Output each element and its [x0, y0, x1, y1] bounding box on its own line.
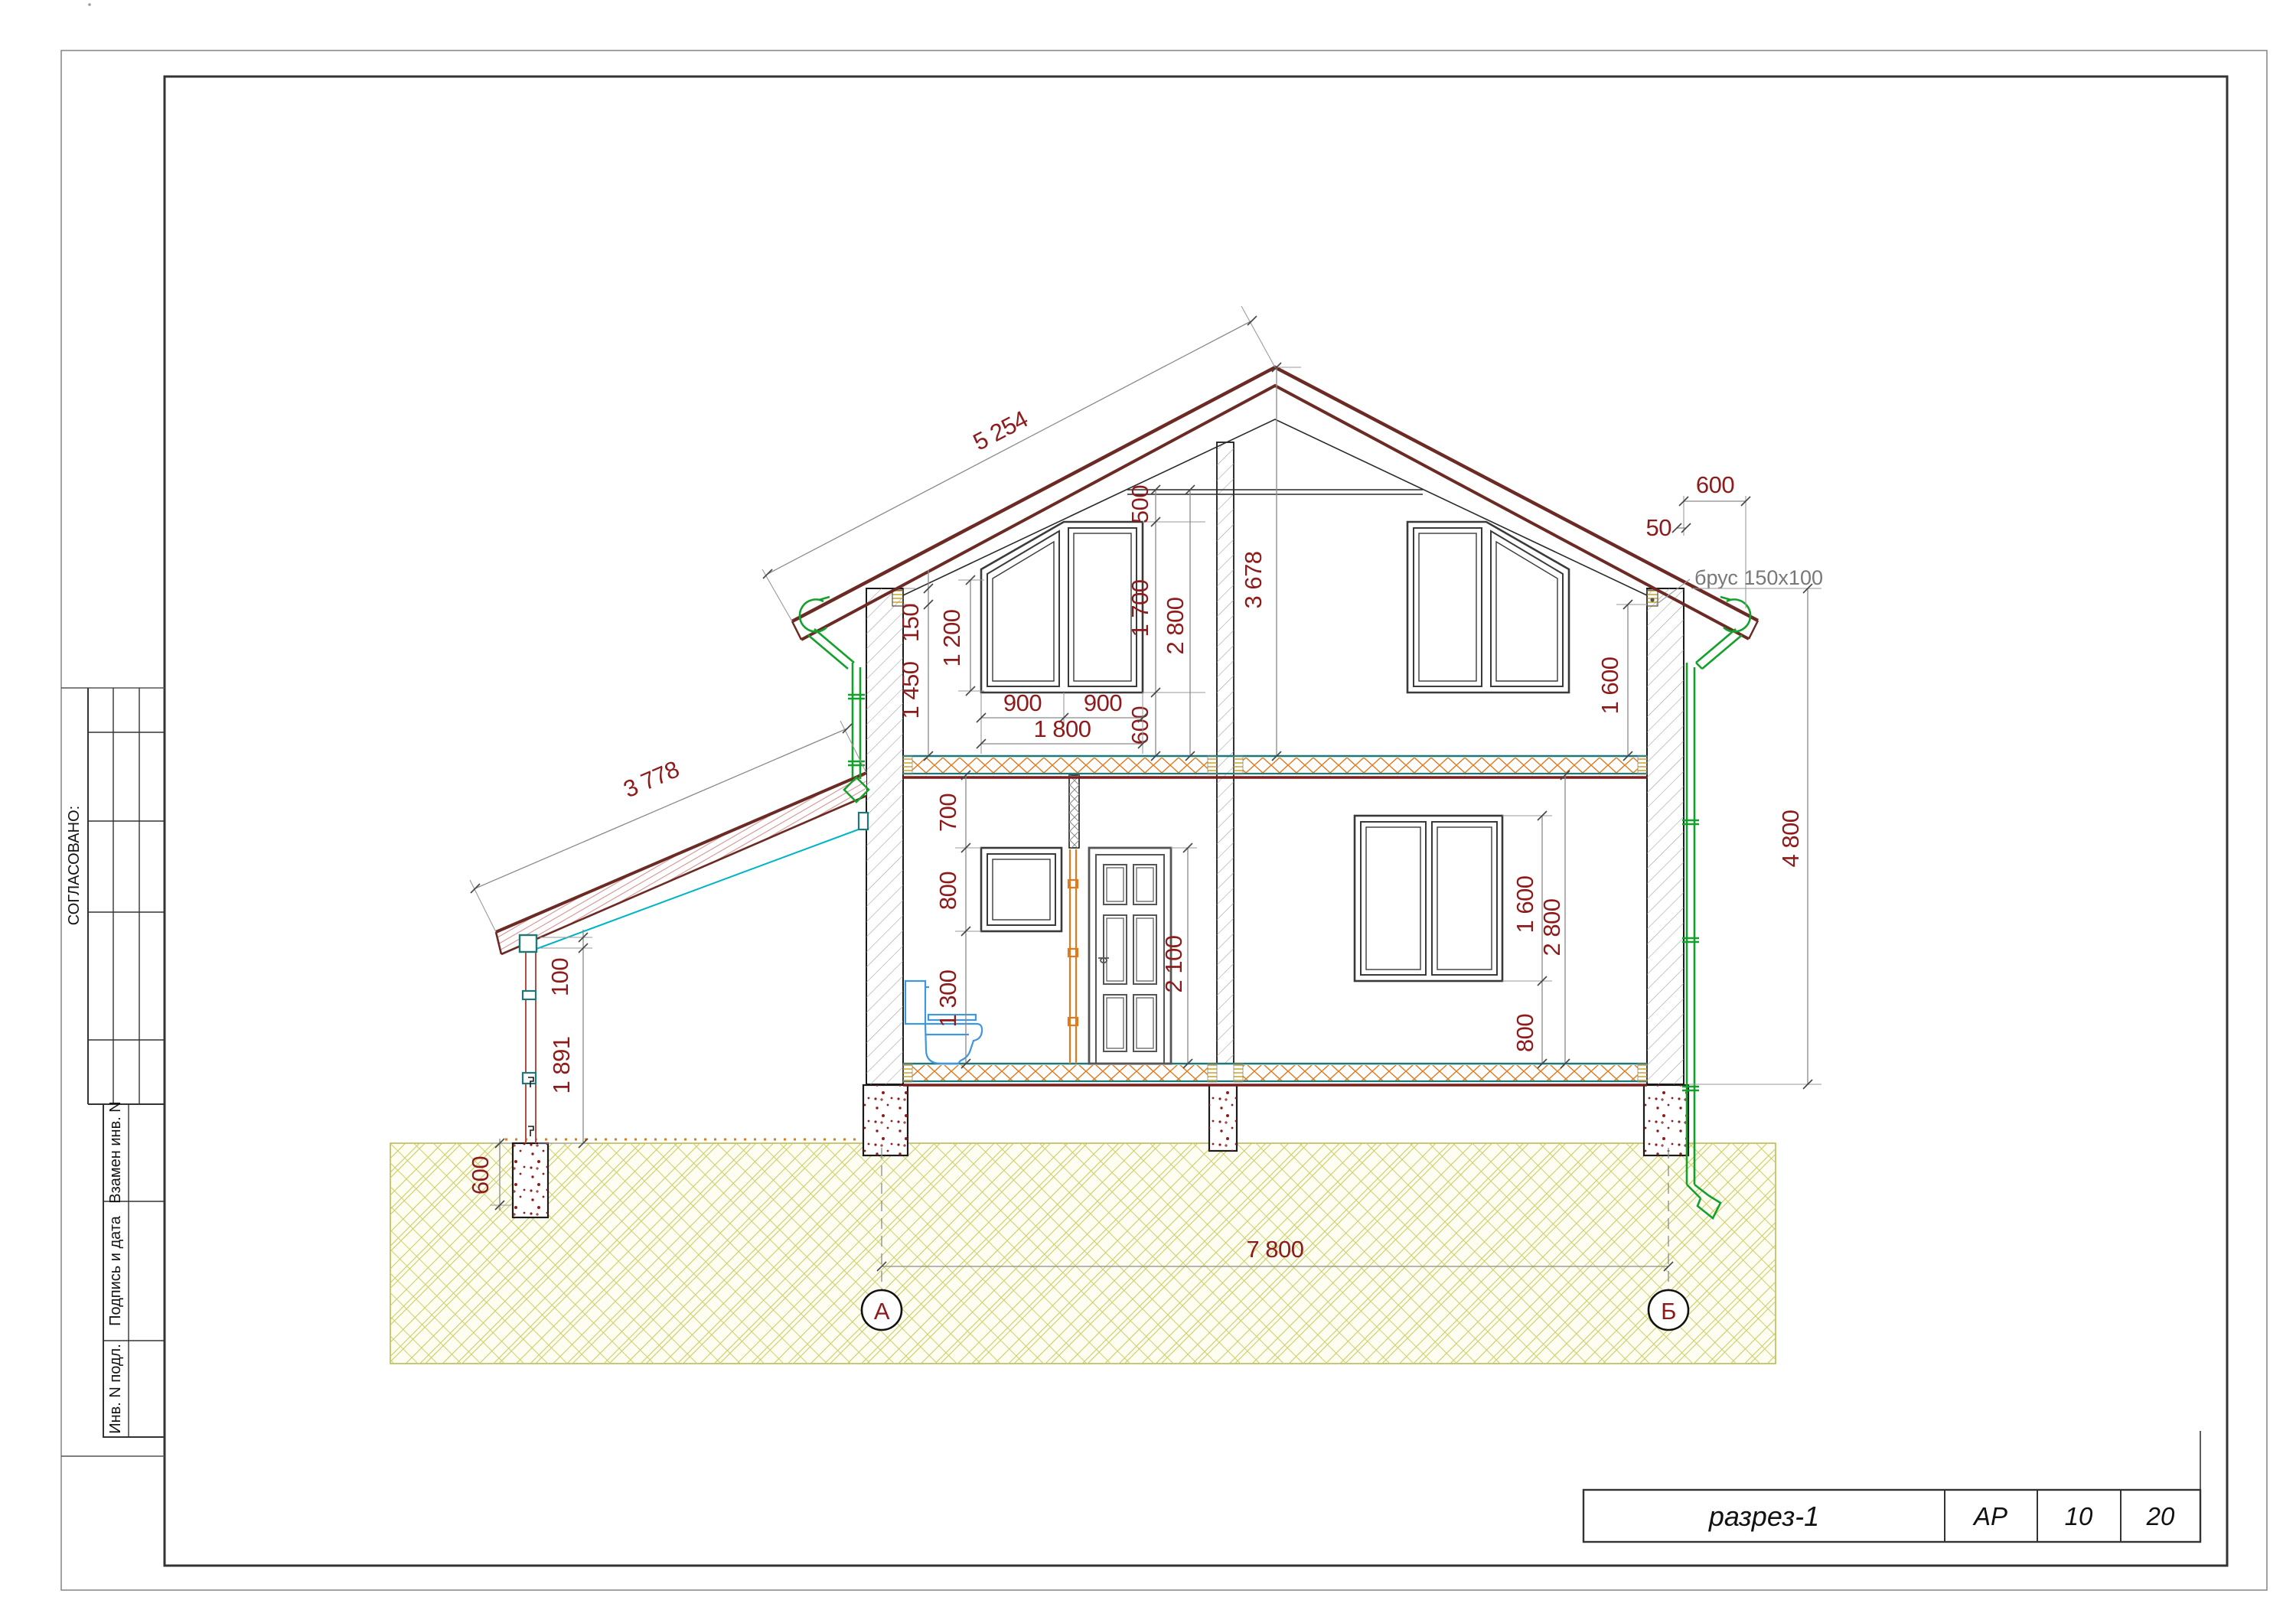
dim-text-right-total: 4 800 — [1777, 810, 1804, 867]
wall-beam-right — [1647, 590, 1658, 606]
dim-text-attic-win-w1: 900 — [1003, 689, 1042, 716]
section-drawing-canvas: СОГЛАСОВАНО: Взамен инв. N Подпись и дат… — [0, 0, 2296, 1623]
dim-ridge-height: 3 678 — [1240, 363, 1301, 761]
stage-code: АР — [1972, 1502, 2007, 1530]
dim-text-attic-pane-height: 1 200 — [938, 609, 965, 666]
post-connector-mid — [523, 991, 536, 999]
stamp-row-inv: Инв. N подл. — [107, 1344, 124, 1434]
post-connector-top — [520, 935, 536, 952]
pier-left — [863, 1085, 908, 1155]
pier-right — [1644, 1085, 1688, 1155]
dim-attic-wall-height: 1 600 — [1596, 600, 1647, 761]
partition-above-door — [1069, 775, 1079, 848]
door-jamb-section — [1068, 849, 1078, 1064]
bathroom-window — [981, 848, 1062, 931]
roof-inner-line — [801, 386, 1749, 640]
dim-roof-slope: 5 254 — [762, 306, 1275, 621]
dim-attic-window-widths: 900 900 1 800 — [977, 689, 1147, 754]
floor1-slab — [903, 1064, 1647, 1085]
dim-text-axes-span: 7 800 — [1246, 1236, 1303, 1263]
wall-center-interior — [1217, 442, 1234, 1064]
ground — [390, 1139, 1776, 1364]
wall-right-exterior — [1647, 588, 1684, 1084]
attic-ceiling-line — [903, 419, 1647, 595]
title-block: разрез-1 АР 10 20 — [1583, 1431, 2200, 1542]
pier-center — [1209, 1085, 1237, 1151]
porch-post — [520, 935, 536, 1143]
floor2-slab — [903, 756, 1647, 777]
dim-floor1-right-column: 1 600 800 2 800 — [1502, 771, 1570, 1068]
agreed-label: СОГЛАСОВАНО: — [66, 806, 83, 925]
dim-text-attic-window-height: 1 700 — [1127, 579, 1153, 637]
openings — [905, 522, 1569, 1064]
dim-text-floor-height: 2 800 — [1538, 898, 1565, 956]
dim-text-overhang-gap: 50 — [1646, 514, 1672, 541]
dim-text-right-window-height: 1 600 — [1512, 875, 1538, 933]
downpipe-right — [1682, 629, 1742, 1218]
interior-door — [1089, 848, 1171, 1064]
dim-text-right-window-sill: 800 — [1512, 1014, 1538, 1052]
dim-text-attic-floor-height: 2 800 — [1162, 597, 1189, 654]
dim-attic-pane-height: 1 200 — [938, 575, 984, 696]
dim-text-small-window-height: 800 — [934, 872, 961, 910]
axis-label-b: Б — [1661, 1298, 1676, 1325]
dim-text-door-height: 2 100 — [1160, 935, 1187, 992]
axis-label-a: А — [874, 1298, 890, 1325]
drawing-sheet: СОГЛАСОВАНО: Взамен инв. N Подпись и дат… — [0, 0, 2296, 1623]
roof — [792, 367, 1758, 640]
dim-text-attic-sill: 600 — [1127, 706, 1153, 745]
living-room-window — [1355, 816, 1502, 981]
dim-text-porch-slope: 3 778 — [619, 755, 683, 803]
dim-text-eave-to-floor: 1 450 — [897, 661, 924, 719]
dim-door-height: 2 100 — [1160, 843, 1197, 1068]
dim-right-total: 4 800 — [1688, 584, 1821, 1089]
left-stamp-upper: СОГЛАСОВАНО: — [66, 688, 165, 1104]
left-stamp-lower: Взамен инв. N Подпись и дата Инв. N подл… — [103, 1101, 165, 1437]
dim-text-wall-beam-height: 150 — [897, 604, 924, 642]
wall-beam-left — [892, 590, 903, 606]
dim-text-above-small-window: 700 — [934, 794, 961, 832]
beam-label: брус 150x100 — [1694, 566, 1823, 589]
dim-porch-post: 100 1 891 — [538, 930, 592, 1148]
porch-wall-connector — [859, 813, 868, 829]
dim-text-pier-depth: 600 — [467, 1156, 494, 1194]
dim-text-attic-wall-height: 1 600 — [1596, 657, 1623, 714]
stamp-row-podpis: Подпись и дата — [107, 1215, 124, 1326]
dim-text-attic-win-total: 1 800 — [1033, 715, 1091, 742]
dim-attic-window-column: 500 1 700 600 2 800 — [1127, 485, 1205, 761]
pier-porch — [513, 1143, 548, 1217]
drawing-title: разрез-1 — [1708, 1501, 1819, 1532]
dim-text-attic-win-w2: 900 — [1084, 689, 1122, 716]
dim-text-eave-overhang: 600 — [1696, 471, 1734, 498]
total-sheets: 20 — [2146, 1502, 2175, 1530]
dim-text-porch-post-top: 100 — [546, 958, 573, 996]
dim-text-roof-slope: 5 254 — [969, 406, 1032, 456]
dim-text-ridge: 3 678 — [1240, 551, 1267, 608]
dim-text-porch-post-height: 1 891 — [548, 1036, 575, 1093]
sheet-number: 10 — [2065, 1502, 2093, 1530]
downpipe-left — [808, 629, 869, 802]
corner-mark — [88, 3, 91, 6]
stamp-row-vzamen: Взамен инв. N — [107, 1101, 124, 1204]
dim-text-small-window-sill: 1 300 — [934, 970, 961, 1027]
dim-text-above-attic-window: 500 — [1127, 485, 1153, 523]
